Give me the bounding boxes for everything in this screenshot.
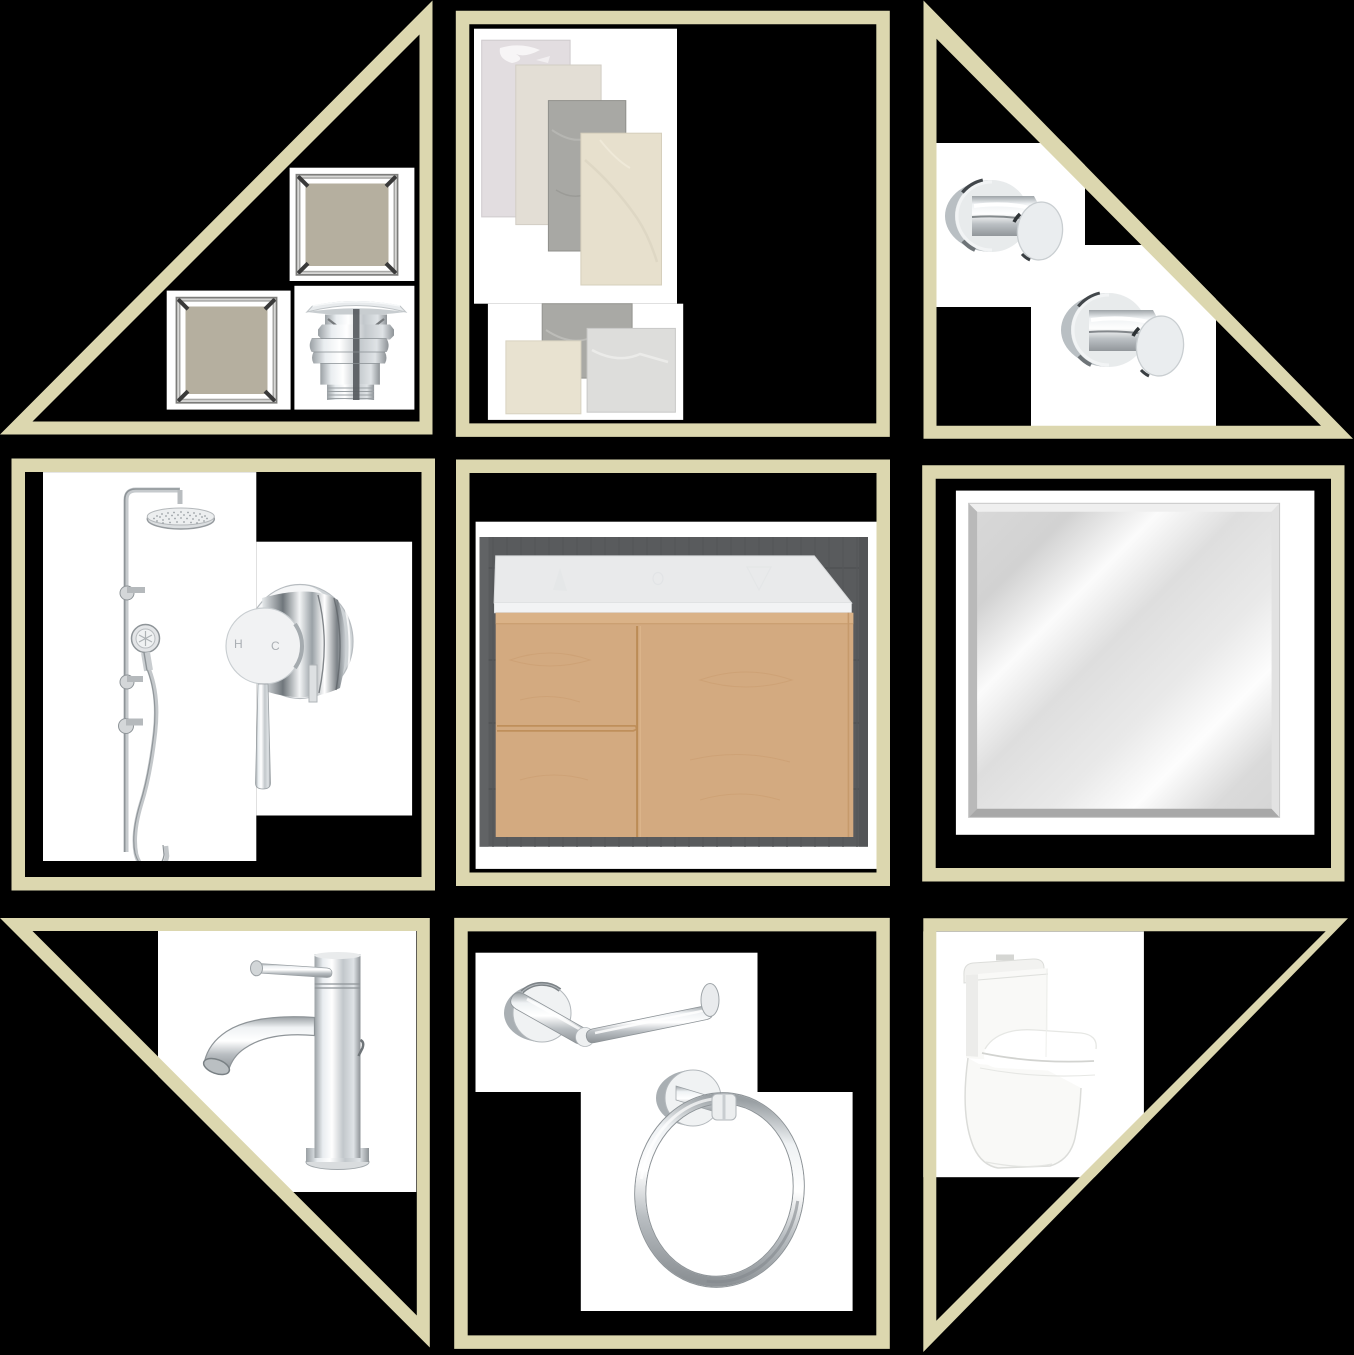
svg-text:C: C: [271, 639, 280, 653]
svg-text:H: H: [234, 637, 243, 651]
